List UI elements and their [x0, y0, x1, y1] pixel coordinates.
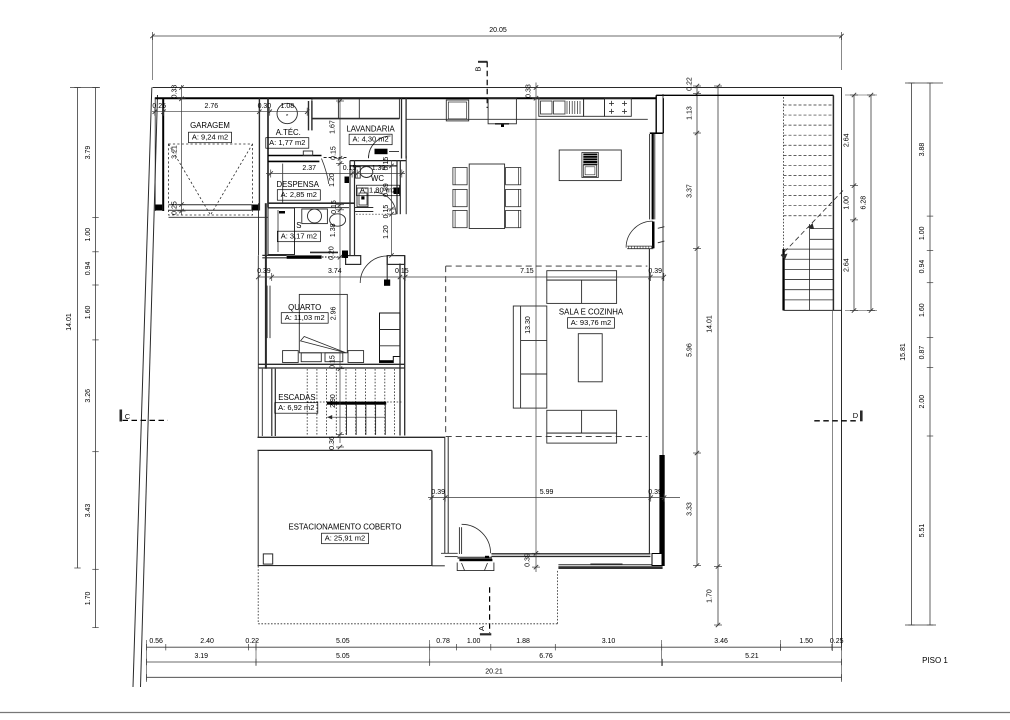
svg-text:2.40: 2.40: [200, 638, 214, 645]
svg-text:2.64: 2.64: [844, 258, 851, 272]
svg-text:1.00: 1.00: [919, 226, 926, 240]
svg-text:5.05: 5.05: [336, 638, 350, 645]
svg-text:1.13: 1.13: [687, 106, 694, 120]
svg-text:1.70: 1.70: [85, 592, 92, 606]
svg-text:20.21: 20.21: [485, 669, 503, 676]
svg-text:0.25: 0.25: [830, 638, 844, 645]
svg-text:0.36: 0.36: [329, 436, 336, 450]
svg-text:0.78: 0.78: [436, 638, 450, 645]
svg-text:A: 11,03 m2: A: 11,03 m2: [285, 313, 325, 322]
svg-text:6.76: 6.76: [539, 653, 553, 660]
svg-text:3.79: 3.79: [85, 146, 92, 160]
svg-text:1.70: 1.70: [707, 589, 714, 603]
svg-text:A: 2,85 m2: A: 2,85 m2: [281, 190, 317, 199]
svg-text:A: 6,92 m2: A: 6,92 m2: [278, 403, 314, 412]
svg-text:A: 1,77 m2: A: 1,77 m2: [269, 138, 305, 147]
svg-text:0.87: 0.87: [919, 346, 926, 360]
svg-text:1.88: 1.88: [516, 638, 530, 645]
svg-text:1.60: 1.60: [85, 306, 92, 320]
svg-text:0.15: 0.15: [331, 146, 338, 160]
svg-text:1.60: 1.60: [919, 303, 926, 317]
svg-text:3.88: 3.88: [919, 143, 926, 157]
svg-text:1.20: 1.20: [383, 225, 390, 239]
svg-text:1.00: 1.00: [844, 196, 851, 210]
svg-text:0.15: 0.15: [395, 268, 409, 275]
svg-text:C: C: [125, 412, 131, 421]
svg-text:0.39: 0.39: [648, 489, 662, 496]
svg-text:QUARTO: QUARTO: [288, 303, 321, 312]
svg-text:5.05: 5.05: [336, 653, 350, 660]
svg-text:3.33: 3.33: [687, 502, 694, 516]
svg-text:2.96: 2.96: [330, 306, 337, 320]
svg-text:0.15: 0.15: [383, 157, 390, 171]
svg-text:ESTACIONAMENTO COBERTO: ESTACIONAMENTO COBERTO: [289, 523, 402, 532]
svg-text:0.20: 0.20: [329, 246, 336, 260]
svg-text:A: 1,80 m2: A: 1,80 m2: [360, 186, 396, 195]
svg-text:3.26: 3.26: [85, 389, 92, 403]
svg-text:0.39: 0.39: [257, 268, 271, 275]
svg-text:0.15: 0.15: [383, 205, 390, 219]
svg-text:0.22: 0.22: [687, 77, 694, 91]
svg-text:WC: WC: [371, 174, 384, 183]
svg-text:A: 25,91 m2: A: 25,91 m2: [325, 534, 365, 543]
svg-text:0.33: 0.33: [172, 85, 179, 99]
svg-text:1.50: 1.50: [799, 638, 813, 645]
svg-text:0.33: 0.33: [526, 84, 533, 98]
svg-text:ESCADAS: ESCADAS: [278, 393, 315, 402]
svg-text:3.10: 3.10: [602, 638, 616, 645]
svg-text:A: 93,76 m2: A: 93,76 m2: [571, 318, 611, 327]
svg-text:2.37: 2.37: [302, 165, 316, 172]
svg-text:1.08: 1.08: [280, 103, 294, 110]
svg-text:LAVANDARIA: LAVANDARIA: [346, 125, 395, 134]
svg-text:S: S: [296, 221, 301, 230]
svg-text:0.39: 0.39: [525, 553, 532, 567]
svg-text:SALA E COZINHA: SALA E COZINHA: [559, 308, 624, 317]
svg-text:A: 4,30 m2: A: 4,30 m2: [352, 135, 388, 144]
svg-text:5.51: 5.51: [919, 524, 926, 538]
svg-text:2.76: 2.76: [204, 103, 218, 110]
svg-text:13.30: 13.30: [525, 316, 532, 334]
svg-text:0.94: 0.94: [85, 261, 92, 275]
svg-text:DESPENSA: DESPENSA: [276, 180, 319, 189]
svg-text:3.37: 3.37: [687, 184, 694, 198]
svg-text:A: A: [477, 626, 486, 631]
svg-text:0.30: 0.30: [258, 103, 272, 110]
svg-text:1.20: 1.20: [329, 173, 336, 187]
svg-text:1.38: 1.38: [330, 223, 337, 237]
svg-text:5.96: 5.96: [687, 343, 694, 357]
svg-text:14.01: 14.01: [66, 313, 73, 331]
svg-text:2.90: 2.90: [330, 394, 337, 408]
svg-text:3.21: 3.21: [172, 145, 179, 159]
svg-text:B: B: [474, 66, 483, 71]
svg-text:5.99: 5.99: [540, 489, 554, 496]
svg-text:1.67: 1.67: [330, 120, 337, 134]
svg-text:GARAGEM: GARAGEM: [190, 121, 230, 130]
svg-text:2.00: 2.00: [919, 395, 926, 409]
svg-text:20.05: 20.05: [489, 27, 507, 34]
svg-text:3.19: 3.19: [194, 653, 208, 660]
svg-text:0.39: 0.39: [648, 268, 662, 275]
svg-text:5.21: 5.21: [745, 653, 759, 660]
svg-text:0.56: 0.56: [149, 638, 163, 645]
svg-text:14.01: 14.01: [707, 315, 714, 333]
svg-text:7.15: 7.15: [520, 268, 534, 275]
svg-text:1.00: 1.00: [85, 228, 92, 242]
svg-text:1.00: 1.00: [467, 638, 481, 645]
svg-text:0.94: 0.94: [919, 260, 926, 274]
svg-text:D: D: [853, 411, 859, 420]
svg-text:0.25: 0.25: [152, 103, 166, 110]
svg-text:0.15: 0.15: [343, 165, 357, 172]
svg-text:A: 9,24 m2: A: 9,24 m2: [192, 133, 228, 142]
svg-text:0.15: 0.15: [330, 355, 337, 369]
svg-text:15.81: 15.81: [900, 343, 907, 361]
svg-text:0.15: 0.15: [331, 200, 338, 214]
svg-text:0.39: 0.39: [431, 489, 445, 496]
svg-text:0.25: 0.25: [172, 201, 179, 215]
svg-text:A.TÉC.: A.TÉC.: [276, 128, 301, 137]
svg-text:6.28: 6.28: [861, 196, 868, 210]
svg-text:3.74: 3.74: [328, 268, 342, 275]
svg-text:2.64: 2.64: [844, 133, 851, 147]
svg-text:A: 3,17 m2: A: 3,17 m2: [281, 232, 317, 241]
svg-text:3.43: 3.43: [85, 504, 92, 518]
svg-text:PISO 1: PISO 1: [922, 656, 948, 665]
svg-text:3.46: 3.46: [714, 638, 728, 645]
svg-text:0.22: 0.22: [245, 638, 259, 645]
